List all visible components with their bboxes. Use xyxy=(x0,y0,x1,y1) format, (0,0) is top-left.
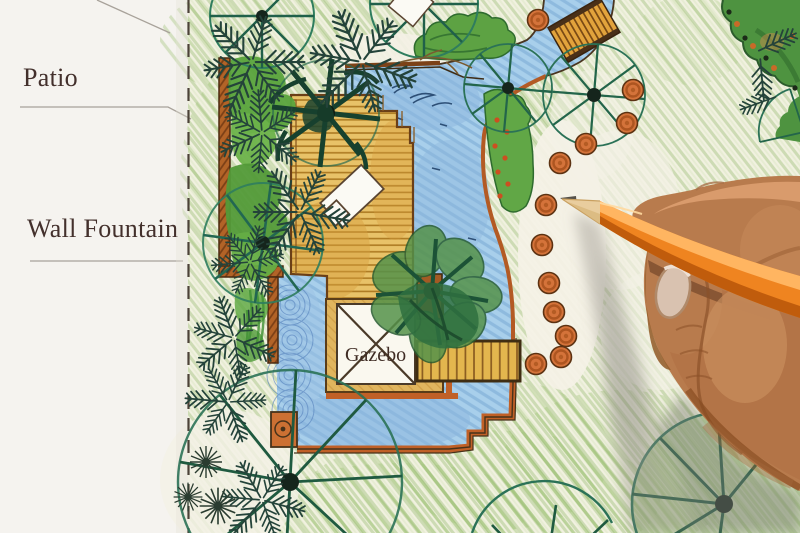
svg-text:Wall Fountain: Wall Fountain xyxy=(27,214,178,243)
svg-text:Gazebo: Gazebo xyxy=(345,344,406,366)
svg-text:Patio: Patio xyxy=(23,63,78,92)
